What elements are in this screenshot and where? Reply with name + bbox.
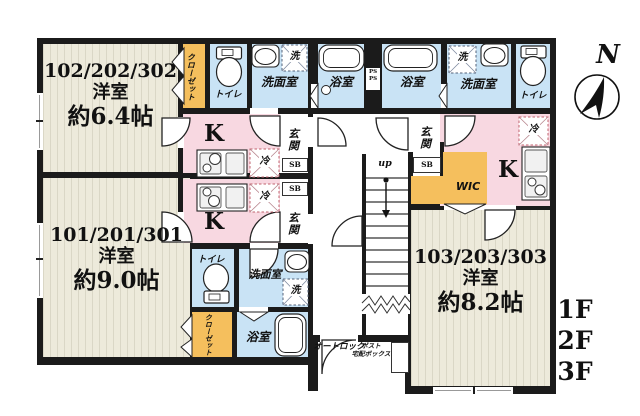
door-arc-front-101 [332, 216, 362, 246]
toilet-icon-102 [217, 47, 242, 87]
unit-103-roomtype: 洋室 [411, 268, 550, 290]
washroom-101-label: 洗面室 [239, 269, 291, 281]
wic-fold [444, 204, 486, 214]
floor-plan: 102/202/302 洋室 約6.4帖 101/201/301 洋室 約9.0… [0, 0, 640, 416]
stair-direction-arrow [382, 177, 390, 218]
toilet-icon-103 [521, 46, 547, 86]
door-arc-room103 [485, 210, 515, 240]
entrance-103-label: 玄関 [419, 118, 431, 158]
closet-101-fold [181, 315, 192, 339]
unit-101-roomtype: 洋室 [43, 246, 190, 268]
floor-1f: 1F [554, 294, 596, 325]
door-arc-kitchen101 [250, 212, 280, 242]
bathroom-101-label: 浴室 [240, 331, 276, 344]
stairs-up-label: up [371, 159, 399, 169]
bath-103-fold [439, 84, 447, 108]
washer-101-label: 洗 [283, 286, 308, 297]
pipe-space-labels: PS PS [366, 69, 380, 83]
unit-103-number: 103/203/303 [411, 246, 550, 268]
ps-label: PS [366, 76, 380, 83]
closet-101-fold [181, 339, 192, 357]
stove-counter-101 [197, 184, 247, 211]
bath-102-fold [310, 84, 318, 108]
shoebox-101: SB [282, 182, 308, 196]
bath-101-fold [240, 312, 268, 321]
closet-101-label: クローゼット [204, 314, 211, 356]
unit-102-size: 約6.4帖 [43, 104, 178, 130]
toilet-icon-101 [204, 264, 230, 303]
stove-counter-102 [197, 150, 247, 177]
post-delivery-label: ポスト 宅配ボックス [350, 342, 392, 358]
unit-103-size: 約8.2帖 [411, 290, 550, 316]
door-arc-kitchen103 [445, 116, 475, 146]
shoebox-103: SB [413, 157, 441, 173]
compass-north-label: N [592, 42, 624, 69]
bathtub-icon-101 [275, 314, 306, 356]
unit-102-name: 102/202/302 洋室 約6.4帖 [43, 60, 178, 130]
fridge-103-label: 冷 [519, 125, 548, 136]
washer-103-label: 洗 [449, 53, 476, 64]
bathroom-103-label: 浴室 [390, 76, 434, 89]
door-arc-kitchen102 [250, 116, 280, 146]
washroom-102-label: 洗面室 [250, 76, 308, 89]
door-arc-front-103 [376, 118, 408, 150]
wic-103-label: WIC [448, 181, 488, 193]
unit-101-name: 101/201/301 洋室 約9.0帖 [43, 224, 190, 294]
floor-2f: 2F [554, 325, 596, 356]
door-arc-front-102 [318, 118, 346, 146]
entrance-101-label: 玄関 [287, 202, 299, 246]
toilet-103-label: トイレ [518, 92, 548, 101]
post-label: ポスト [350, 342, 392, 350]
unit-103-name: 103/203/303 洋室 約8.2帖 [411, 246, 550, 316]
kitchen-101-label: K [200, 210, 228, 234]
entrance-102-label: 玄関 [287, 118, 299, 162]
washer-102-label: 洗 [282, 52, 307, 63]
floor-list: 1F 2F 3F [554, 294, 596, 387]
shoebox-102: SB [282, 158, 308, 172]
washroom-103-label: 洗面室 [447, 78, 509, 91]
sink-icon-103 [481, 44, 508, 66]
stove-counter-103 [522, 147, 550, 200]
stair-treads [366, 178, 408, 298]
delivery-box-label: 宅配ボックス [350, 350, 392, 358]
bathtub-icon-103 [384, 45, 437, 71]
unit-101-number: 101/201/301 [43, 224, 190, 246]
toilet-102-label: トイレ [210, 91, 246, 100]
fridge-102-label: 冷 [250, 157, 279, 168]
toilet-101-label: トイレ [194, 256, 228, 265]
sink-icon-102 [252, 45, 279, 67]
bathroom-102-label: 浴室 [320, 76, 362, 89]
kitchen-102-label: K [200, 122, 228, 146]
compass [575, 75, 619, 119]
unit-102-roomtype: 洋室 [43, 82, 178, 104]
fridge-101-label: 冷 [250, 192, 279, 203]
closet-102-label: クローゼット [186, 47, 194, 107]
ps-label: PS [366, 69, 380, 76]
floor-3f: 3F [554, 356, 596, 387]
unit-102-number: 102/202/302 [43, 60, 178, 82]
compass-needle-icon [580, 77, 604, 118]
kitchen-103-label: K [494, 158, 522, 182]
unit-101-size: 約9.0帖 [43, 268, 190, 294]
